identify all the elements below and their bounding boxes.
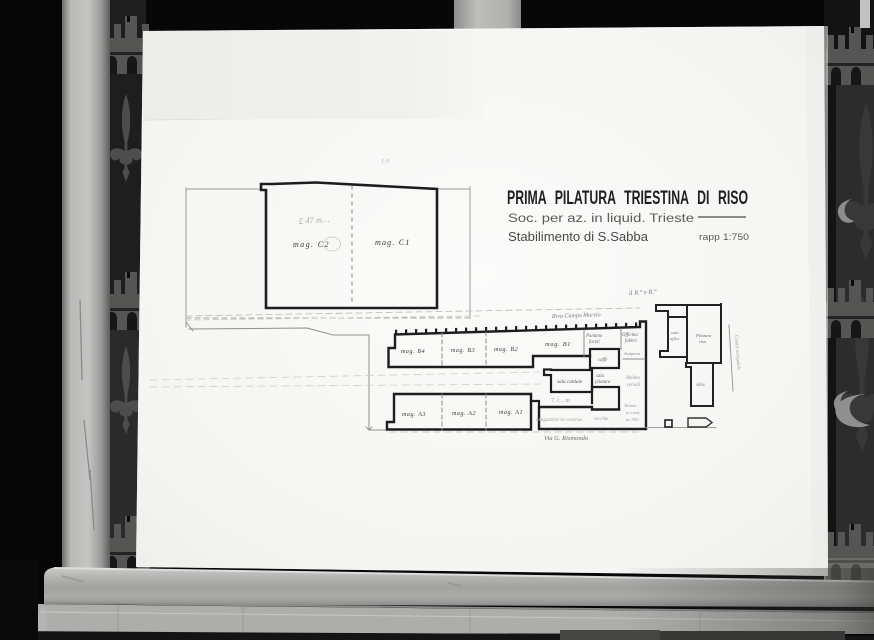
svg-text:sala: sala (596, 374, 605, 379)
svg-text:mag. A3: mag. A3 (402, 412, 426, 418)
svg-text:mag. A2: mag. A2 (452, 411, 476, 417)
svg-text:Pilatura: Pilatura (695, 333, 712, 338)
svg-text:Officina: Officina (622, 333, 638, 338)
svg-text:caffè: caffè (598, 358, 608, 363)
svg-text:cereali: cereali (627, 383, 641, 388)
svg-text:sala caldaie: sala caldaie (557, 379, 583, 385)
svg-text:sala: sala (671, 330, 679, 335)
svg-text:mag. B3: mag. B3 (451, 348, 475, 354)
svg-text:il R.° e R.°: il R.° e R.° (629, 289, 657, 297)
svg-text:Magazzini in costruz.: Magazzini in costruz. (535, 417, 583, 423)
svg-text:mag. B1: mag. B1 (545, 341, 571, 348)
svg-text:Antiporta: Antiporta (623, 351, 640, 356)
svg-text:silos: silos (696, 383, 705, 388)
svg-text:pilatura: pilatura (594, 380, 611, 385)
svg-text:mag. B2: mag. B2 (494, 347, 518, 353)
svg-text:7. i… m: 7. i… m (551, 398, 571, 404)
svg-text:Stabilimento di S.Sabba: Stabilimento di S.Sabba (508, 230, 648, 244)
svg-text:Soc. per az. in liquid. Triest: Soc. per az. in liquid. Trieste (508, 213, 694, 225)
svg-text:mag. B4: mag. B4 (401, 348, 425, 355)
svg-text:fabbri: fabbri (625, 339, 637, 344)
svg-text:mag. A1: mag. A1 (499, 410, 523, 416)
svg-text:in costr.: in costr. (626, 410, 641, 415)
svg-text:riso: riso (699, 339, 707, 344)
svg-text:Molino: Molino (625, 376, 640, 381)
svg-text:1:0: 1:0 (381, 158, 390, 165)
svg-text:vecchie: vecchie (594, 417, 609, 422)
svg-text:£ 47 m…: £ 47 m… (298, 214, 329, 226)
svg-text:rapp 1:750: rapp 1:750 (699, 232, 749, 243)
svg-text:PRIMA PILATURA TRIESTINA DI RI: PRIMA PILATURA TRIESTINA DI RISO (507, 188, 748, 209)
svg-text:m. 500: m. 500 (626, 417, 639, 422)
svg-text:Pantano: Pantano (585, 334, 603, 339)
svg-text:uffici: uffici (670, 336, 680, 341)
svg-text:mag. C1: mag. C1 (375, 238, 411, 247)
svg-text:Via G. Rismondo: Via G. Rismondo (544, 435, 589, 442)
svg-text:faceti: faceti (589, 340, 600, 345)
svg-text:Tettoia: Tettoia (624, 403, 637, 408)
